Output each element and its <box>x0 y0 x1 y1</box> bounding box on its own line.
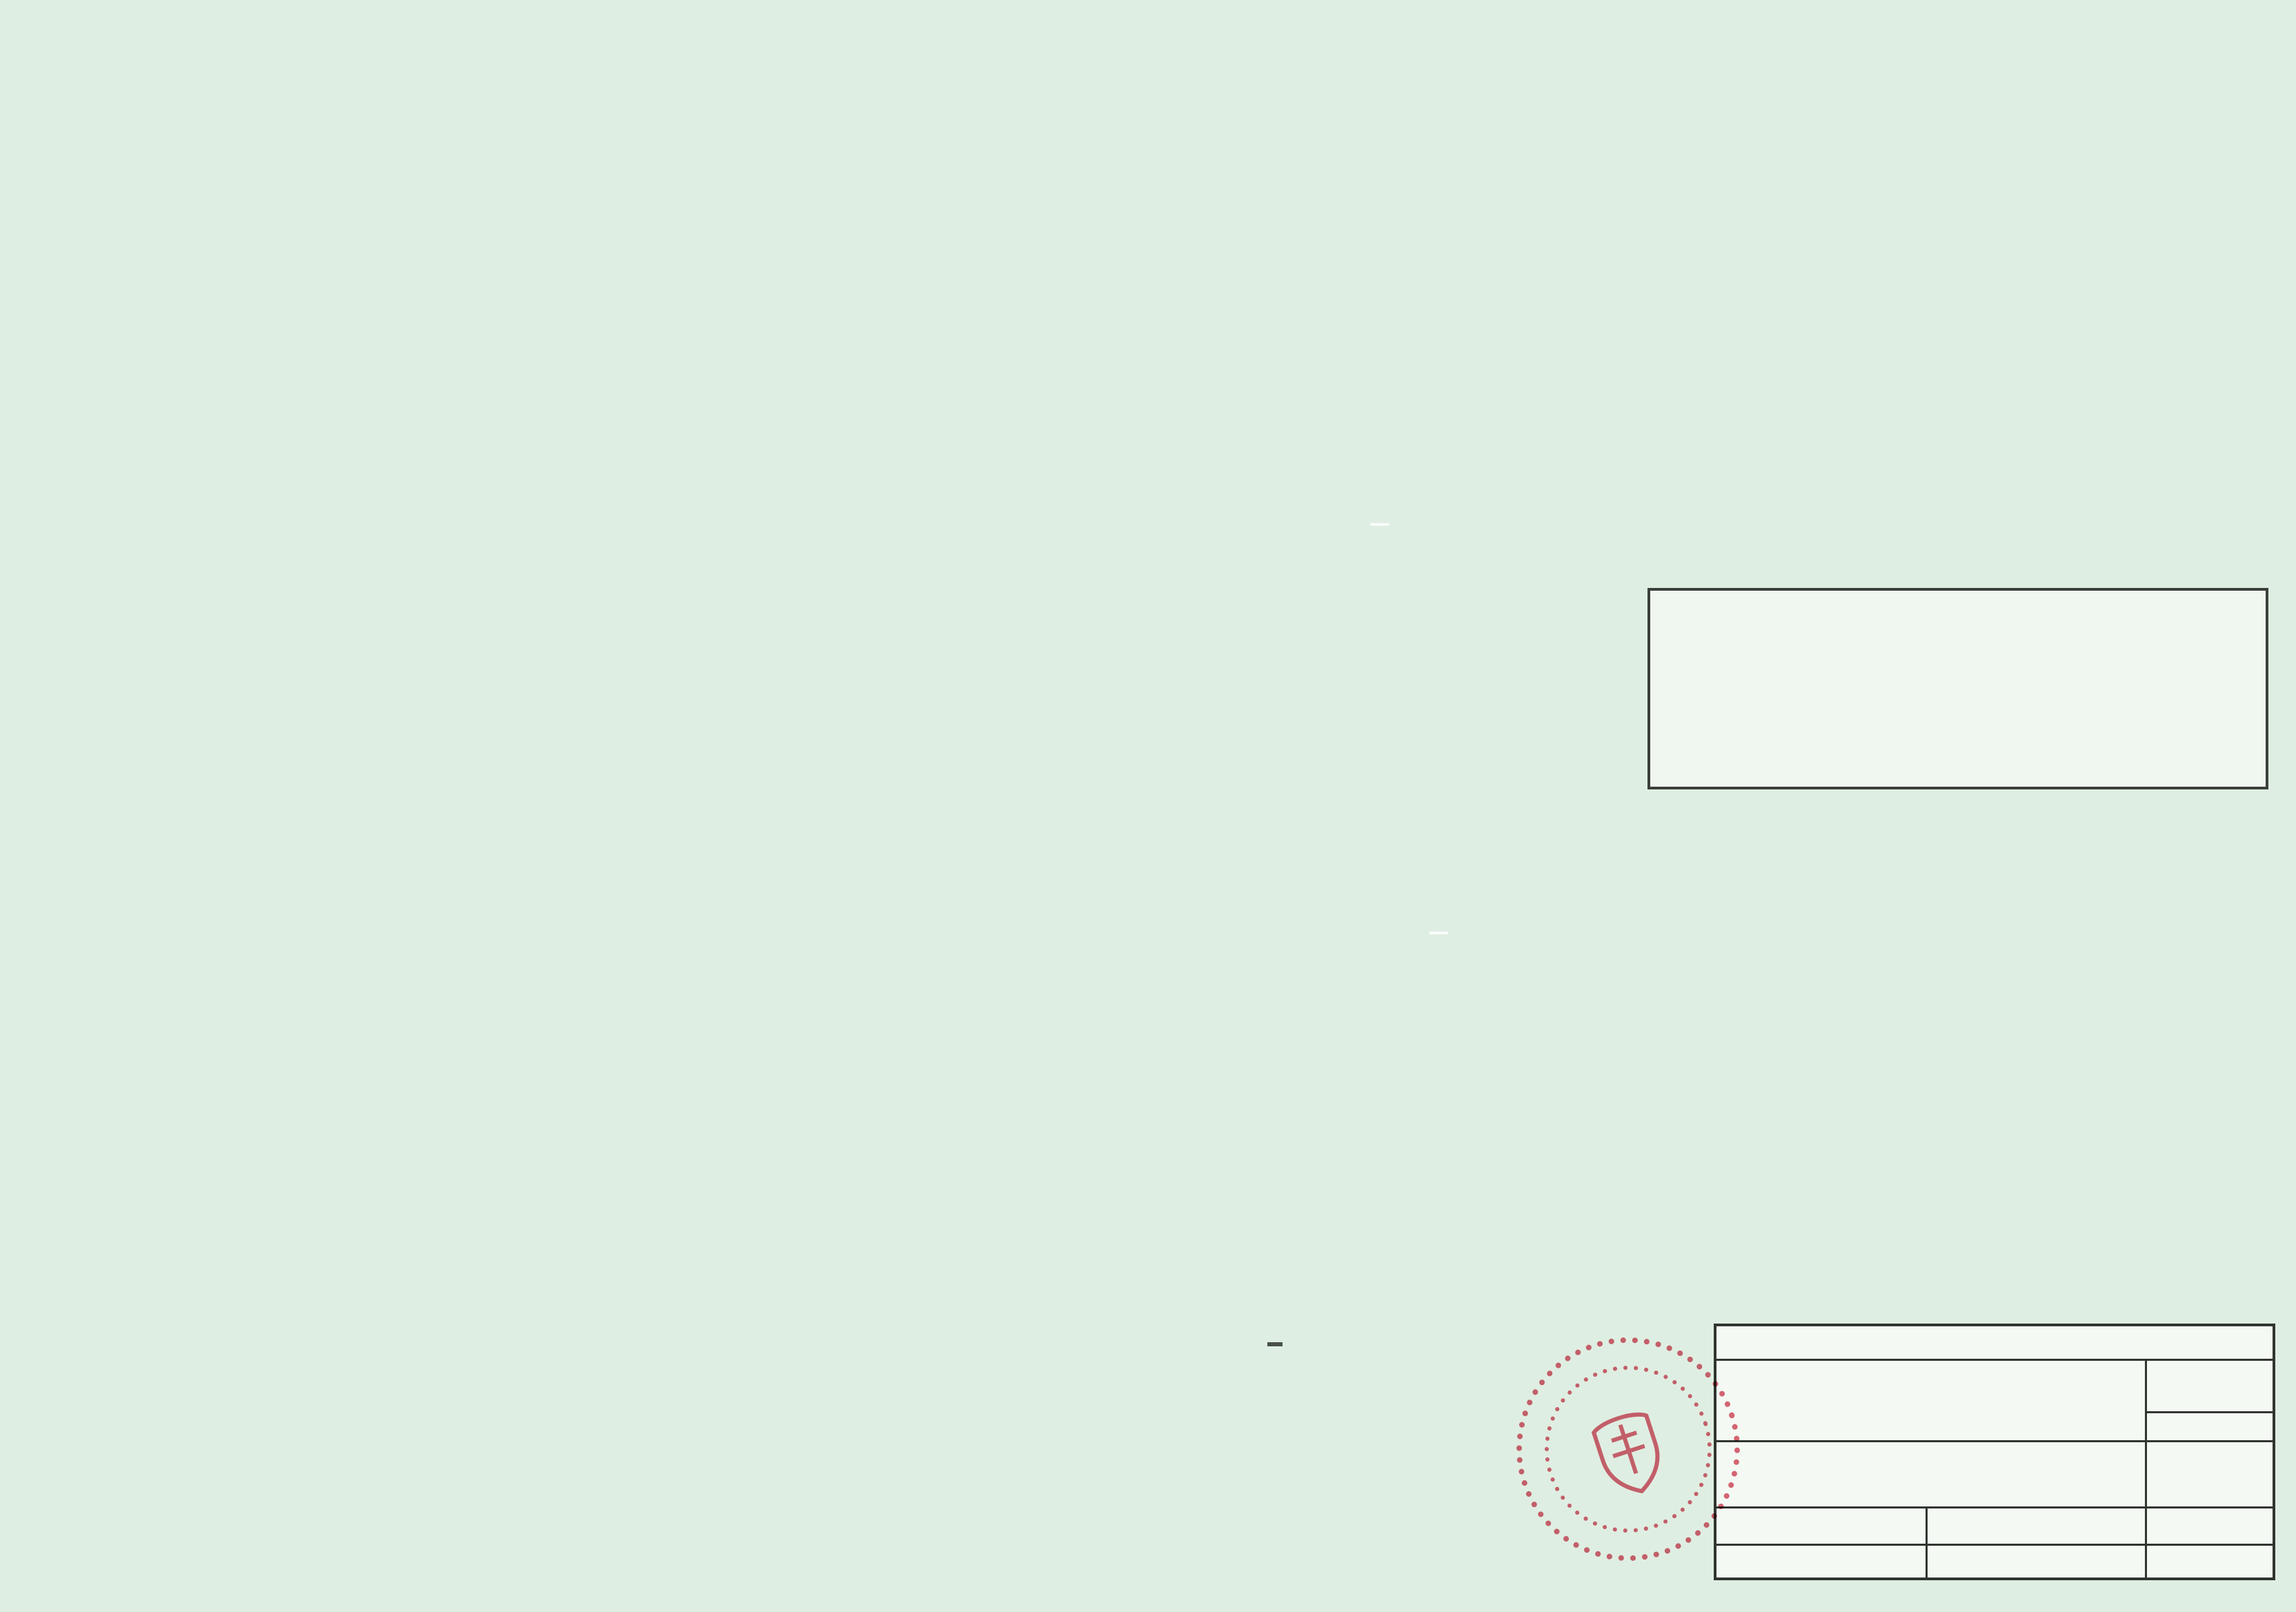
drawing-number-label <box>2147 1413 2273 1417</box>
scale-cell <box>2147 1508 2273 1546</box>
map-title-box <box>1647 588 2268 789</box>
drawing-name-label <box>1716 1442 2145 1446</box>
road-label-d1-f <box>1267 1342 1283 1346</box>
company-cell <box>1716 1326 2273 1361</box>
prepared-by-label <box>1928 1546 2145 1550</box>
drawing-title-block <box>1714 1324 2275 1580</box>
drawing-number-cell <box>2147 1361 2273 1413</box>
prepared-by-cell <box>1928 1546 2147 1577</box>
designer-cell <box>1928 1508 2147 1546</box>
district-cell <box>1716 1546 1928 1577</box>
designer-label <box>1928 1508 2145 1513</box>
district-label <box>1716 1546 1926 1550</box>
document-name-cell <box>1716 1361 2147 1442</box>
date-cell <box>2147 1546 2273 1577</box>
scale-label <box>2147 1508 2273 1513</box>
stamp-double-cross-icon <box>1605 1419 1652 1478</box>
document-name-label <box>1716 1361 2145 1365</box>
drawing-number-label-cell <box>2147 1413 2273 1442</box>
scanned-planning-map <box>0 0 2296 1612</box>
profession-cell <box>2147 1442 2273 1508</box>
company-line-1 <box>1716 1326 2273 1328</box>
drawing-name-cell <box>1716 1442 2147 1508</box>
settlement-label-zabava <box>1429 932 1448 934</box>
profession-label <box>2147 1442 2273 1446</box>
date-label <box>2147 1546 2273 1550</box>
settlement-label-podlipa <box>1370 523 1389 526</box>
